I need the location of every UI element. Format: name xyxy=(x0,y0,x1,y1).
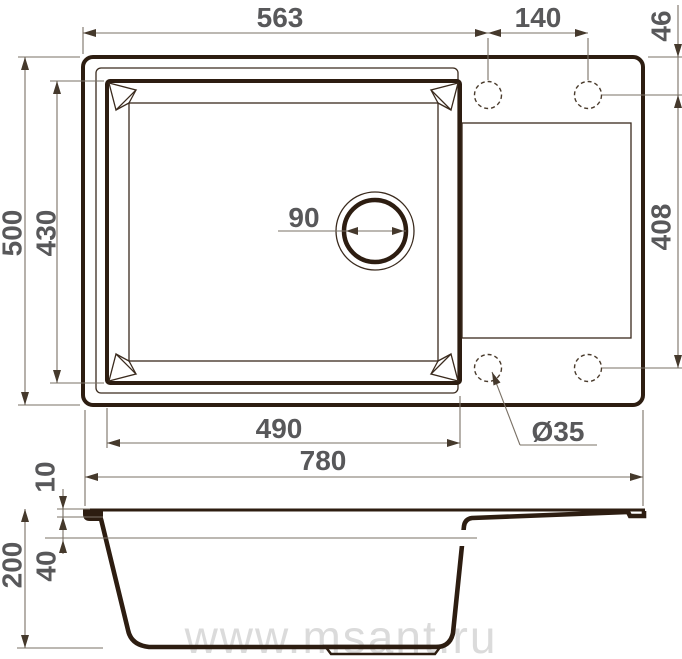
sink-drawing: www.msant.ru xyxy=(0,0,682,659)
dim-bowl-depth-label: 430 xyxy=(31,210,62,257)
tap-hole-bottom-right xyxy=(575,355,602,382)
dim-hole-spacing-label: 140 xyxy=(515,2,562,33)
dim-overall-depth-label: 500 xyxy=(0,210,28,257)
dim-drainboard-depth-label: 408 xyxy=(646,204,677,251)
dimension-lines xyxy=(17,5,682,648)
dim-bowl-width-label: 490 xyxy=(256,413,303,444)
dim-height-label: 200 xyxy=(0,542,28,589)
dim-rim-thickness-label: 10 xyxy=(30,461,61,492)
drainboard-outline xyxy=(462,123,631,338)
dim-hole-diameter-label: Ø35 xyxy=(532,416,585,447)
dim-overall-width-label: 780 xyxy=(300,445,347,476)
tap-hole-bottom-left xyxy=(475,355,502,382)
dim-drain-label: 90 xyxy=(288,202,319,233)
dim-hole-offset-label: 46 xyxy=(646,10,677,41)
bowl-bevel-inner xyxy=(129,103,438,361)
tap-hole-top-left xyxy=(475,82,502,109)
tap-hole-top-right xyxy=(575,82,602,109)
dim-top-width-label: 563 xyxy=(257,2,304,33)
drawing-canvas: www.msant.ru xyxy=(0,0,682,659)
dimension-labels: 563 140 46 500 430 90 408 490 Ø35 780 10… xyxy=(0,2,677,588)
dim-rim-to-water-label: 40 xyxy=(31,550,62,581)
